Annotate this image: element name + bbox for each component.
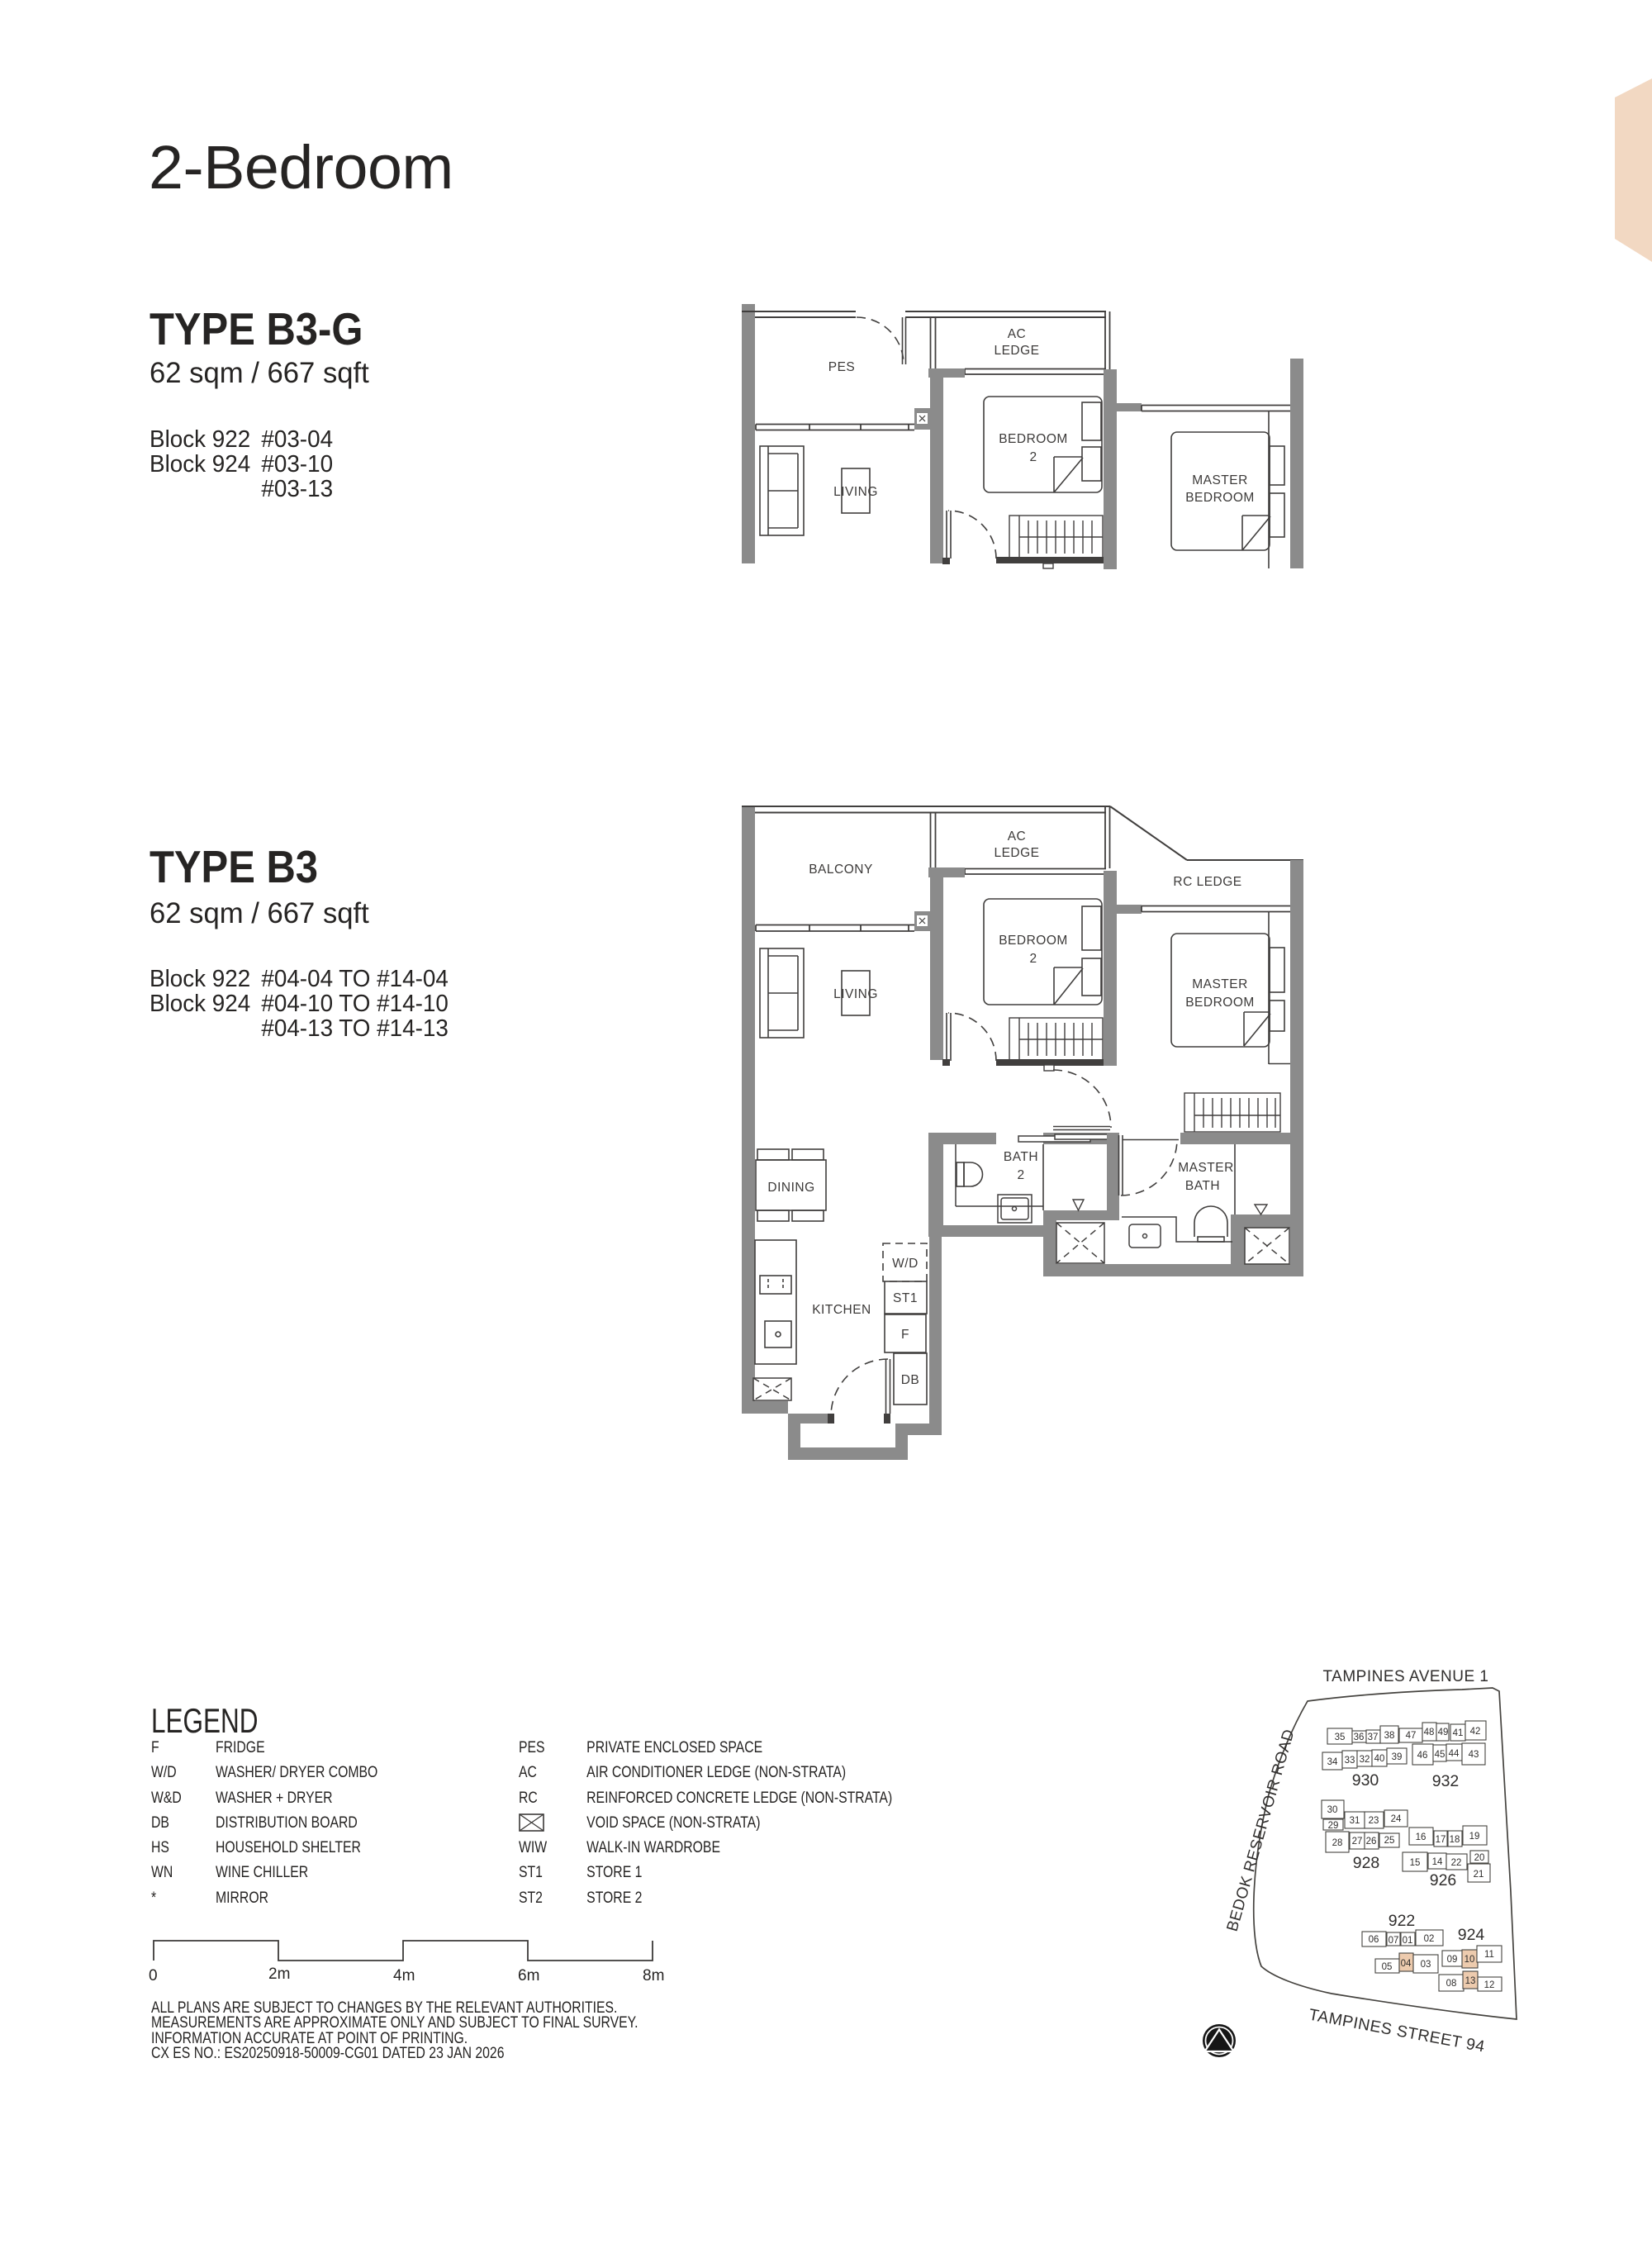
svg-text:39: 39: [1392, 1752, 1403, 1762]
svg-text:33: 33: [1345, 1756, 1355, 1766]
svg-text:24: 24: [1391, 1814, 1402, 1824]
svg-text:AC: AC: [1008, 327, 1027, 341]
svg-text:22: 22: [1451, 1858, 1462, 1868]
svg-text:LEDGE: LEDGE: [994, 846, 1039, 860]
svg-text:41: 41: [1453, 1728, 1464, 1738]
svg-text:20: 20: [1474, 1853, 1485, 1863]
svg-text:LIVING: LIVING: [833, 485, 878, 499]
svg-text:924: 924: [1458, 1926, 1485, 1944]
svg-text:07: 07: [1389, 1936, 1399, 1946]
svg-text:TAMPINES AVENUE 1: TAMPINES AVENUE 1: [1322, 1668, 1488, 1685]
svg-text:04: 04: [1401, 1959, 1412, 1969]
svg-text:932: 932: [1432, 1772, 1460, 1790]
svg-text:BALCONY: BALCONY: [809, 863, 873, 877]
svg-text:21: 21: [1474, 1870, 1484, 1880]
svg-text:2: 2: [1017, 1168, 1024, 1182]
svg-text:19: 19: [1469, 1832, 1480, 1842]
svg-text:40: 40: [1374, 1754, 1385, 1764]
svg-text:MASTER: MASTER: [1192, 473, 1248, 487]
svg-text:DB: DB: [901, 1373, 920, 1387]
svg-text:47: 47: [1406, 1731, 1417, 1741]
svg-text:35: 35: [1335, 1733, 1346, 1742]
svg-text:49: 49: [1438, 1728, 1449, 1737]
svg-text:KITCHEN: KITCHEN: [812, 1303, 871, 1317]
svg-text:27: 27: [1352, 1837, 1363, 1847]
svg-text:BEDROOM: BEDROOM: [999, 934, 1068, 948]
svg-text:2: 2: [1029, 952, 1037, 966]
svg-text:11: 11: [1484, 1950, 1494, 1960]
svg-text:25: 25: [1384, 1836, 1395, 1846]
svg-text:DINING: DINING: [767, 1181, 814, 1195]
svg-text:31: 31: [1350, 1816, 1360, 1826]
svg-text:08: 08: [1446, 1979, 1457, 1989]
svg-text:05: 05: [1382, 1962, 1393, 1972]
svg-text:BEDROOM: BEDROOM: [1185, 491, 1255, 505]
svg-text:38: 38: [1384, 1731, 1395, 1741]
svg-text:F: F: [901, 1328, 909, 1342]
svg-text:930: 930: [1352, 1771, 1379, 1790]
svg-text:PES: PES: [828, 360, 856, 374]
svg-text:ST1: ST1: [893, 1291, 918, 1305]
svg-text:30: 30: [1327, 1805, 1338, 1815]
svg-text:BEDROOM: BEDROOM: [1185, 996, 1255, 1010]
svg-text:10: 10: [1464, 1955, 1475, 1965]
svg-text:BATH: BATH: [1004, 1150, 1038, 1164]
svg-text:MASTER: MASTER: [1178, 1161, 1234, 1175]
svg-text:18: 18: [1450, 1835, 1460, 1845]
svg-text:BATH: BATH: [1185, 1179, 1220, 1193]
svg-text:16: 16: [1416, 1832, 1427, 1842]
svg-text:48: 48: [1424, 1728, 1435, 1737]
svg-text:42: 42: [1470, 1727, 1481, 1737]
svg-text:03: 03: [1421, 1960, 1431, 1970]
svg-text:45: 45: [1435, 1750, 1445, 1760]
svg-text:28: 28: [1332, 1838, 1343, 1848]
svg-text:RC LEDGE: RC LEDGE: [1173, 875, 1241, 889]
svg-text:23: 23: [1369, 1816, 1379, 1826]
svg-text:34: 34: [1327, 1757, 1338, 1767]
svg-text:LEDGE: LEDGE: [994, 344, 1039, 358]
svg-text:29: 29: [1328, 1821, 1339, 1831]
svg-text:15: 15: [1410, 1858, 1421, 1868]
svg-text:926: 926: [1430, 1871, 1457, 1889]
svg-text:44: 44: [1449, 1749, 1460, 1759]
svg-text:LIVING: LIVING: [833, 987, 878, 1001]
svg-text:BEDROOM: BEDROOM: [999, 432, 1068, 446]
svg-text:13: 13: [1465, 1976, 1476, 1986]
svg-text:37: 37: [1368, 1733, 1379, 1742]
svg-text:43: 43: [1469, 1750, 1479, 1760]
svg-text:928: 928: [1353, 1854, 1380, 1872]
svg-text:922: 922: [1389, 1912, 1416, 1930]
svg-text:26: 26: [1366, 1837, 1377, 1847]
svg-text:12: 12: [1484, 1980, 1495, 1990]
svg-text:06: 06: [1369, 1935, 1379, 1945]
svg-text:46: 46: [1417, 1751, 1428, 1761]
svg-text:01: 01: [1403, 1936, 1413, 1946]
svg-text:MASTER: MASTER: [1192, 977, 1248, 991]
svg-text:02: 02: [1424, 1934, 1435, 1944]
svg-text:AC: AC: [1008, 829, 1027, 844]
svg-text:09: 09: [1447, 1955, 1458, 1965]
svg-text:BEDOK RESERVOIR ROAD: BEDOK RESERVOIR ROAD: [1224, 1728, 1298, 1934]
svg-text:36: 36: [1354, 1733, 1365, 1742]
svg-text:17: 17: [1436, 1835, 1446, 1845]
svg-text:2: 2: [1029, 450, 1037, 464]
svg-text:W/D: W/D: [892, 1257, 919, 1271]
svg-text:TAMPINES STREET 94: TAMPINES STREET 94: [1308, 2006, 1487, 2056]
svg-text:32: 32: [1360, 1755, 1370, 1765]
svg-text:14: 14: [1432, 1857, 1443, 1867]
